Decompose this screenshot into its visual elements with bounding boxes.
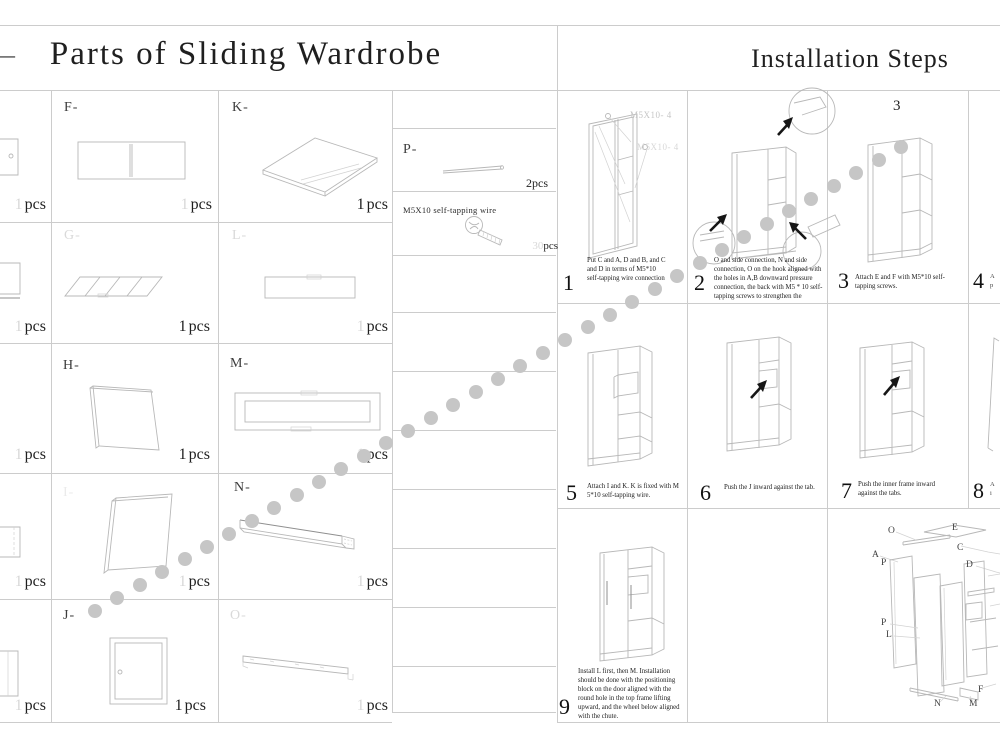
part-qty: 30pcs — [480, 240, 558, 252]
part-label-l: L- — [232, 228, 247, 244]
part-qty: 1pcs — [0, 196, 46, 214]
part-label-k: K- — [232, 100, 249, 116]
step-7-number: 7 — [841, 478, 852, 504]
trail-dot — [872, 153, 886, 167]
trail-dot — [804, 192, 818, 206]
step-3-number: 3 — [838, 268, 849, 294]
trail-dot — [715, 243, 729, 257]
trail-dot — [178, 552, 192, 566]
exploded-label: D — [966, 560, 973, 570]
trail-dot — [200, 540, 214, 554]
step-4-text-fragment: Ap — [990, 272, 995, 290]
trail-dot — [245, 514, 259, 528]
step-2-number: 2 — [694, 270, 705, 296]
trail-dot — [88, 604, 102, 618]
trail-dot — [827, 179, 841, 193]
step-5-number: 5 — [566, 480, 577, 506]
parts-title: Parts of Sliding Wardrobe — [0, 36, 492, 73]
trail-dot — [379, 436, 393, 450]
exploded-label: A — [872, 550, 879, 560]
step-3-header: 3 — [893, 98, 901, 115]
part-qty: 1pcs — [0, 446, 46, 464]
part-m-drawing — [233, 388, 383, 434]
part-qty: 1pcs — [100, 573, 210, 591]
part-i-drawing — [100, 490, 182, 574]
part-fragment-drawing — [0, 524, 24, 562]
part-qty: 1pcs — [270, 573, 388, 591]
part-fragment-drawing — [0, 646, 24, 702]
trail-dot — [424, 411, 438, 425]
part-qty: 1pcs — [100, 697, 206, 715]
steps-title: Installation Steps — [715, 44, 985, 74]
trail-dot — [603, 308, 617, 322]
part-o-drawing — [240, 648, 365, 688]
step-1-annotation: M5X10- 4 — [637, 142, 679, 152]
step-2-text: O and side connection, N and side connec… — [714, 256, 828, 301]
trail-dot — [536, 346, 550, 360]
trail-dot — [648, 282, 662, 296]
trail-dot — [110, 591, 124, 605]
part-qty: 1pcs — [100, 318, 210, 336]
part-label-g: G- — [64, 228, 81, 244]
part-l-drawing — [263, 272, 358, 300]
part-qty: 1pcs — [100, 446, 210, 464]
step-8-diagram — [984, 333, 1000, 453]
exploded-label: O — [888, 526, 895, 536]
trail-dot — [446, 398, 460, 412]
part-qty: 1pcs — [0, 697, 46, 715]
part-qty: 1pcs — [270, 697, 388, 715]
trail-dot — [401, 424, 415, 438]
part-g-drawing — [60, 273, 170, 301]
step-1-number: 1 — [563, 270, 574, 296]
part-label-j: J- — [63, 608, 75, 624]
trail-dot — [558, 333, 572, 347]
step-9-number: 9 — [559, 694, 570, 720]
step-1-text: Put C and A, D and B, and C and D in ter… — [587, 256, 669, 283]
part-k-drawing — [255, 128, 385, 203]
step-4-number: 4 — [973, 268, 984, 294]
part-label-p: P- — [403, 142, 417, 158]
trail-dot — [491, 372, 505, 386]
trail-dot — [469, 385, 483, 399]
part-j-drawing — [108, 636, 170, 706]
trail-dot — [581, 320, 595, 334]
step-8-text-fragment: Ai — [990, 480, 995, 498]
step-8-number: 8 — [973, 478, 984, 504]
part-label-h: H- — [63, 358, 80, 374]
step-7-diagram — [850, 328, 945, 470]
trail-dot — [290, 488, 304, 502]
part-qty: 1pcs — [0, 573, 46, 591]
exploded-label: F — [978, 685, 983, 695]
trail-dot — [133, 578, 147, 592]
part-label-n: N- — [234, 480, 251, 496]
trail-dot — [357, 449, 371, 463]
step-6-diagram — [715, 323, 815, 463]
part-label-m: M- — [230, 356, 249, 372]
part-fragment-drawing — [0, 136, 24, 180]
step-5-text: Attach I and K. K is fixed with M 5*10 s… — [587, 482, 684, 500]
part-qty: 1pcs — [270, 318, 388, 336]
trail-dot — [670, 269, 684, 283]
step-6-text: Push the J inward against the tab. — [724, 483, 828, 492]
step-2-diagram — [690, 95, 825, 273]
exploded-label: C — [957, 543, 963, 553]
trail-dot — [312, 475, 326, 489]
trail-dot — [334, 462, 348, 476]
trail-dot — [625, 295, 639, 309]
exploded-label: E — [952, 523, 958, 533]
part-h-drawing — [85, 378, 165, 456]
step-1-diagram — [575, 100, 680, 270]
part-qty: 1pcs — [100, 196, 212, 214]
step-1-annotation: M5X10- 4 — [630, 110, 672, 120]
trail-dot — [760, 217, 774, 231]
step-9-text: Install L first, then M. Installation sh… — [578, 667, 680, 721]
step-7-text: Push the inner frame inward against the … — [858, 480, 942, 498]
step-5-diagram — [580, 335, 685, 473]
exploded-diagram — [828, 516, 1000, 722]
exploded-label: N — [934, 699, 941, 709]
part-f-drawing — [77, 140, 187, 182]
trail-dot — [894, 140, 908, 154]
trail-dot — [849, 166, 863, 180]
part-label-f: F- — [64, 100, 78, 116]
part-fragment-drawing — [0, 258, 24, 304]
exploded-label: L — [886, 630, 892, 640]
exploded-label: M — [969, 699, 977, 709]
step-3-text: Attach E and F with M5*10 self-tapping s… — [855, 273, 955, 291]
trail-dot — [267, 501, 281, 515]
part-label-i: I- — [63, 485, 74, 501]
part-qty: 1pcs — [0, 318, 46, 336]
step-9-diagram — [590, 533, 682, 673]
manual-page: — Parts of Sliding Wardrobe Installation… — [0, 0, 1000, 750]
trail-dot — [693, 256, 707, 270]
step-6-number: 6 — [700, 480, 711, 506]
exploded-label: P — [881, 558, 886, 568]
part-qty: 1pcs — [270, 196, 388, 214]
part-label-o: O- — [230, 608, 247, 624]
exploded-label: P — [881, 618, 886, 628]
part-qty: 2pcs — [470, 176, 548, 191]
trail-dot — [222, 527, 236, 541]
